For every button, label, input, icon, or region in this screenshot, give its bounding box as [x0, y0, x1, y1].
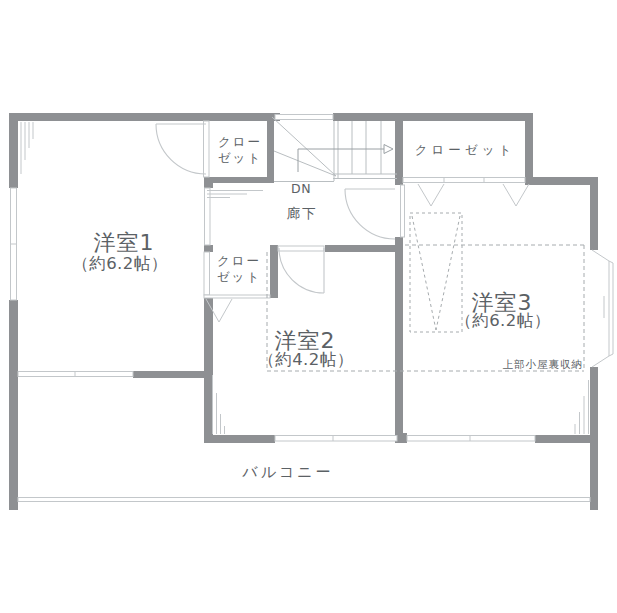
- balcony-edge: [18, 498, 590, 502]
- closet-label-line1: クロー: [207, 253, 271, 269]
- room3-size: （約6.2帖）: [428, 310, 578, 332]
- window-dividers: [11, 178, 485, 442]
- wall-top-right: [333, 113, 533, 121]
- wall-room3-north: [525, 177, 598, 185]
- hatch-marks: [21, 122, 589, 434]
- wall-south-pier: [397, 433, 407, 443]
- wall-room1-south: [133, 371, 213, 378]
- hallway-label: 廊下: [276, 205, 328, 223]
- window-room2-south: [275, 436, 397, 442]
- attic-storage-label: 上部小屋裏収納: [461, 358, 583, 372]
- room3-door-arc: [345, 189, 395, 239]
- opening-room2-door: [278, 246, 324, 251]
- bifold-mark: [418, 184, 444, 206]
- wall-column-b: [204, 245, 213, 252]
- stair-winder: [272, 117, 336, 176]
- closet-top-right-label: クローゼット: [403, 142, 527, 159]
- wall-west-lower: [9, 300, 18, 510]
- room2-size: （約4.2帖）: [231, 349, 381, 371]
- room1-size: （約6.2帖）: [45, 253, 195, 275]
- wall-mid-column-lower: [395, 237, 403, 443]
- stair-winder: [274, 151, 336, 176]
- wall-column-c: [204, 298, 213, 443]
- bifold-mark: [503, 184, 529, 206]
- dn-arrow-icon: [298, 145, 393, 173]
- opening-room1-door: [205, 188, 211, 245]
- window-room3-south: [407, 436, 535, 442]
- wall-south-west: [204, 435, 275, 443]
- closet-top-middle-label: クロー ゼット: [207, 134, 273, 166]
- opening-closettr-bottom: [403, 178, 525, 183]
- closet-label-line2: ゼット: [207, 150, 273, 166]
- balcony-label: バルコニー: [238, 463, 338, 482]
- bay-window: [592, 250, 613, 367]
- closetmid-door-arc: [156, 124, 206, 174]
- floorplan-canvas: 洋室1 （約6.2帖） 洋室2 （約4.2帖） 洋室3 （約6.2帖） クロー …: [0, 0, 617, 613]
- wall-top-left: [9, 113, 280, 121]
- room2-door-arc: [279, 248, 324, 293]
- window-stair-top: [275, 115, 333, 120]
- wall-room2-north: [325, 245, 403, 252]
- wall-west-upper: [9, 121, 18, 188]
- wall-closet2-right: [270, 245, 278, 298]
- wall-south-east: [535, 435, 598, 443]
- opening-closet2-bottom: [204, 295, 270, 298]
- closet-middle-label: クロー ゼット: [207, 253, 271, 285]
- stairs-dn-label: DN: [285, 181, 317, 196]
- closet-label-line2: ゼット: [207, 269, 271, 285]
- wall-east-upper: [590, 177, 598, 250]
- closet-label-line1: クロー: [207, 134, 273, 150]
- wall-closetmid-bottom: [206, 177, 274, 183]
- opening-room3-door: [401, 185, 405, 237]
